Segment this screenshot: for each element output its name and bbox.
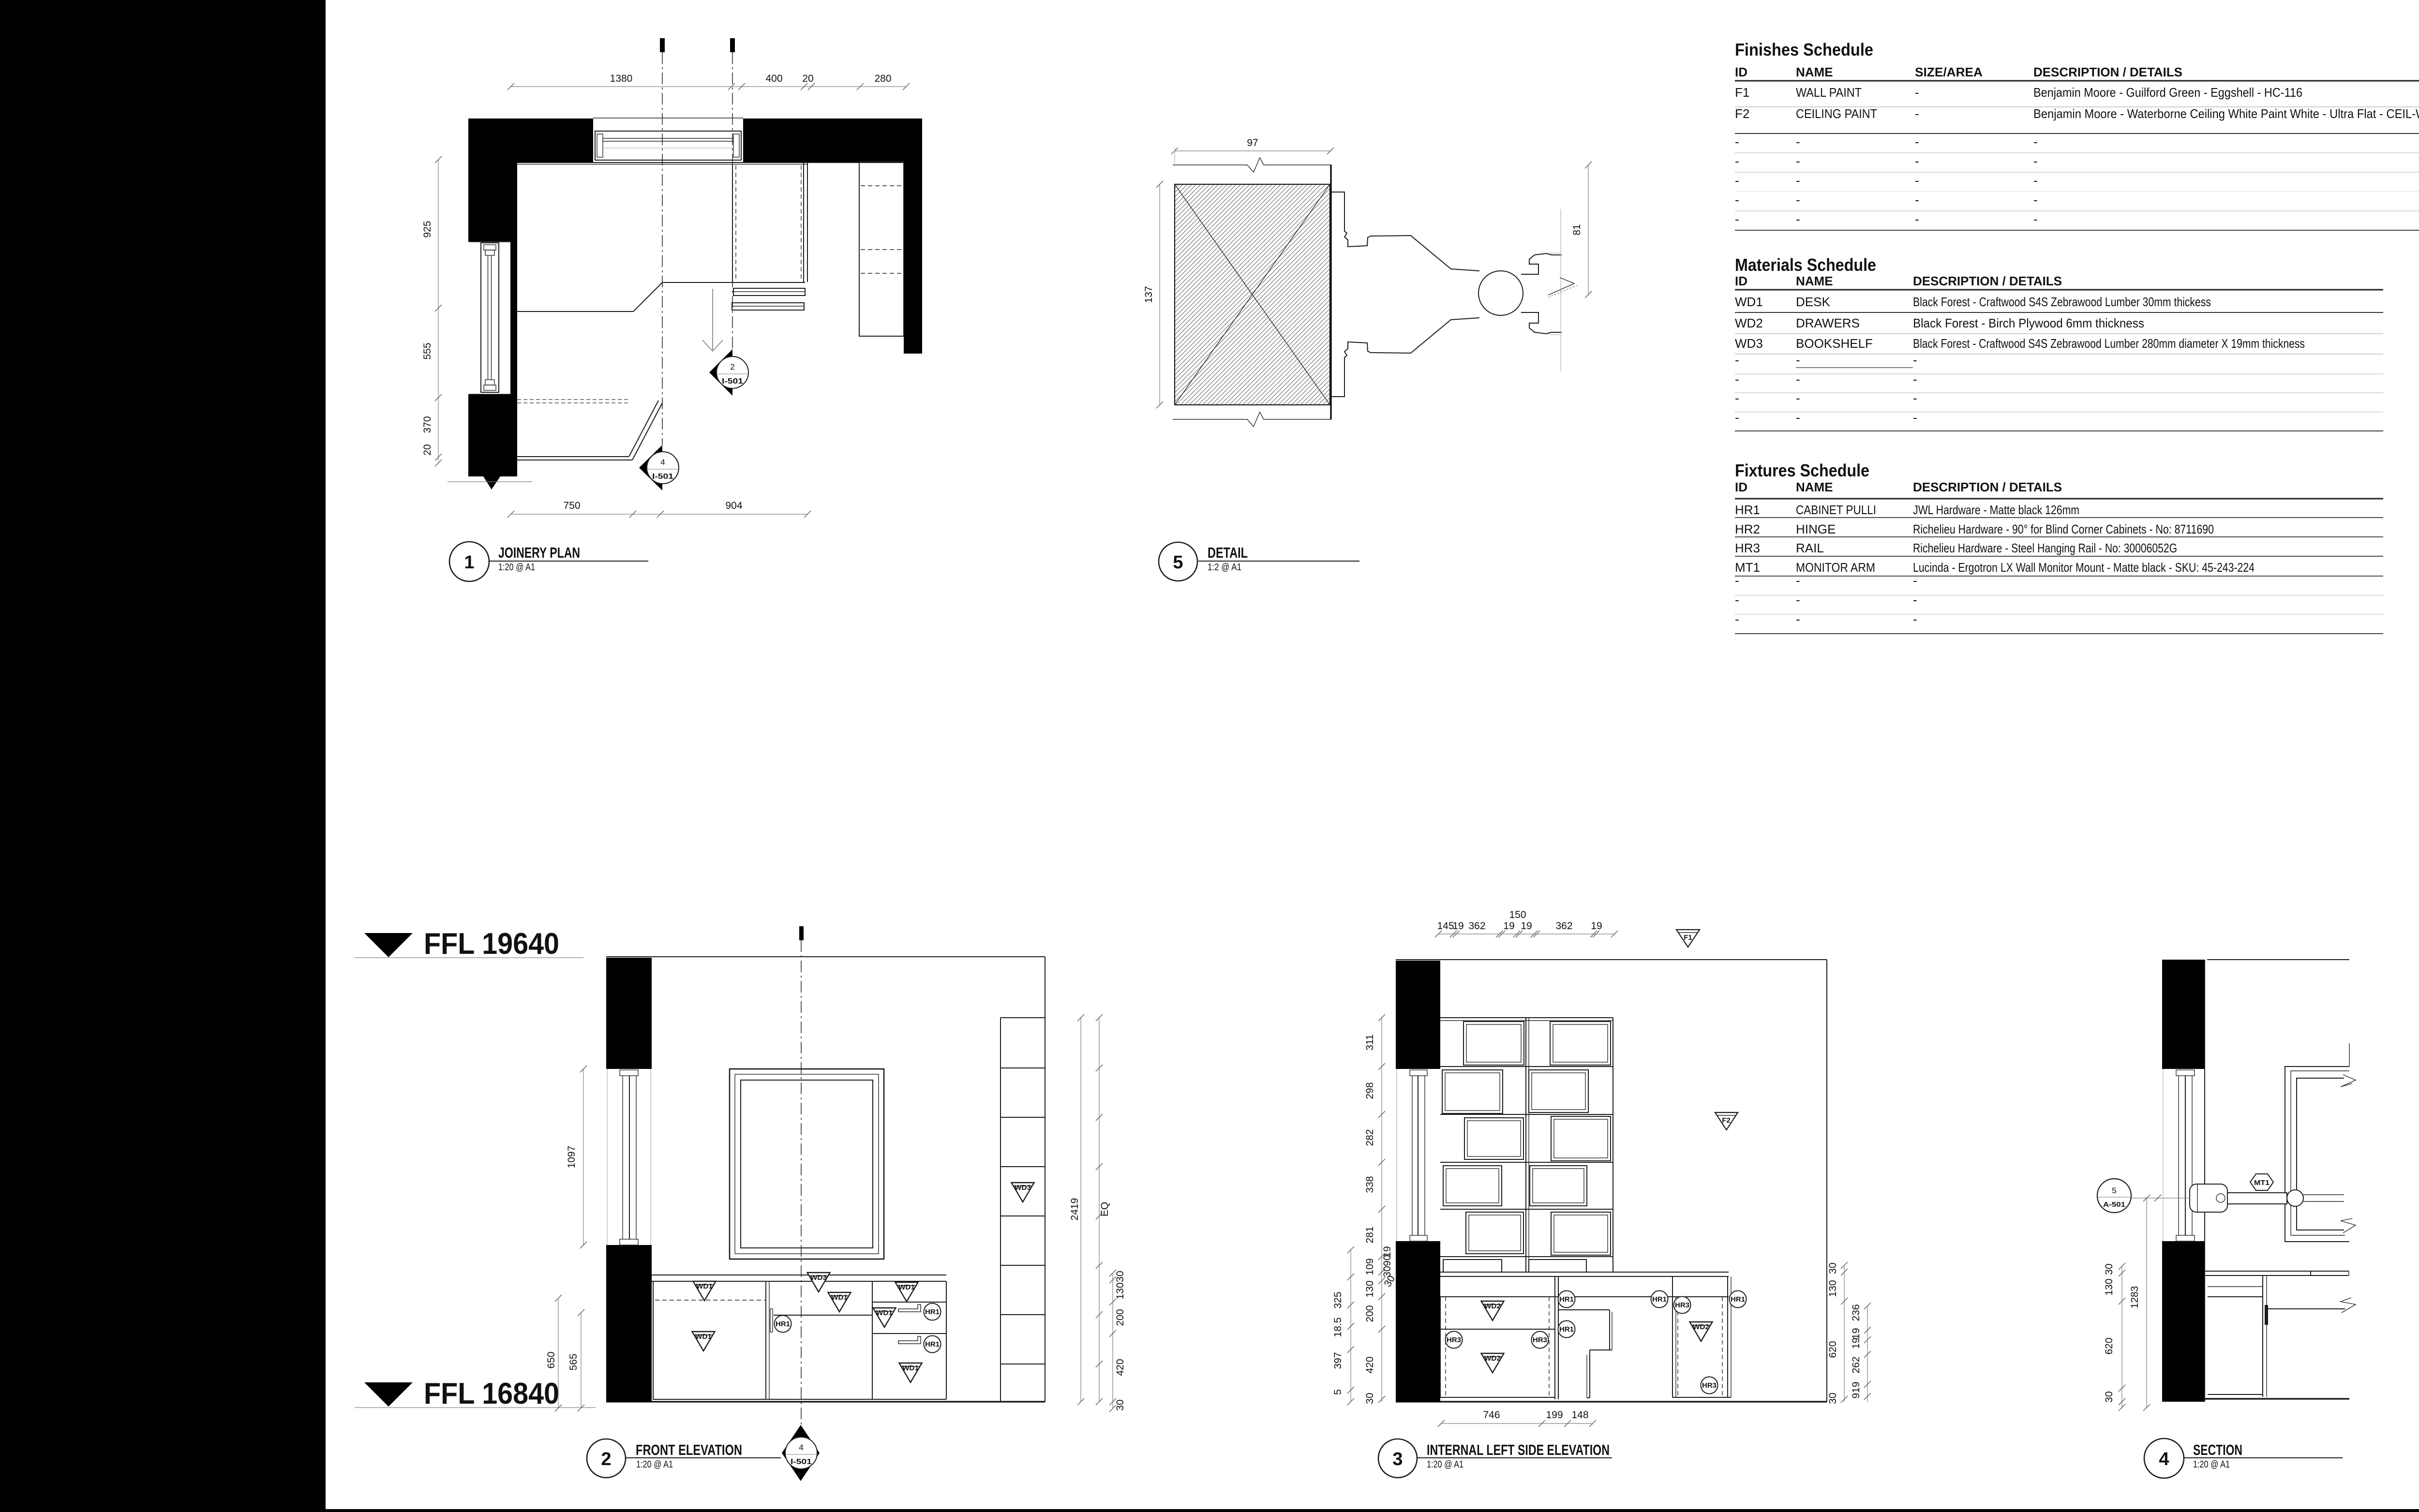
- svg-text:30: 30: [1115, 1271, 1126, 1282]
- svg-text:1097: 1097: [566, 1146, 577, 1169]
- svg-text:19: 19: [1591, 920, 1602, 932]
- svg-text:-: -: [2033, 154, 2038, 168]
- svg-text:WD2: WD2: [1484, 1302, 1501, 1310]
- svg-text:19: 19: [1521, 920, 1532, 932]
- svg-text:EQ: EQ: [1099, 1202, 1110, 1216]
- svg-text:-: -: [1735, 410, 1739, 425]
- svg-text:-: -: [1796, 593, 1800, 607]
- svg-text:MT1: MT1: [2254, 1179, 2270, 1187]
- svg-text:5: 5: [1332, 1389, 1344, 1395]
- svg-text:919: 919: [1851, 1381, 1862, 1398]
- svg-text:-: -: [1915, 212, 1919, 226]
- svg-text:3: 3: [1392, 1449, 1403, 1469]
- svg-text:HR3: HR3: [1447, 1336, 1461, 1344]
- svg-text:1: 1: [464, 552, 474, 573]
- svg-text:-: -: [1735, 154, 1739, 168]
- svg-text:DETAIL: DETAIL: [1208, 544, 1248, 561]
- svg-text:NAME: NAME: [1796, 480, 1833, 494]
- svg-text:-: -: [1735, 372, 1739, 386]
- svg-text:-: -: [2033, 193, 2038, 207]
- svg-text:30: 30: [1827, 1262, 1838, 1274]
- svg-text:-: -: [1915, 106, 1919, 121]
- svg-text:-: -: [1796, 212, 1800, 226]
- svg-text:ID: ID: [1735, 274, 1747, 288]
- svg-text:362: 362: [1468, 920, 1485, 932]
- svg-text:CABINET PULLI: CABINET PULLI: [1796, 503, 1876, 517]
- svg-text:Richelieu Hardware - Steel Han: Richelieu Hardware - Steel Hanging Rail …: [1913, 541, 2177, 555]
- svg-text:925: 925: [422, 221, 433, 237]
- svg-text:-: -: [1913, 573, 1917, 588]
- svg-text:-: -: [1735, 612, 1739, 626]
- svg-text:WD3: WD3: [1015, 1184, 1031, 1192]
- svg-text:281: 281: [1364, 1226, 1375, 1243]
- svg-text:130: 130: [2104, 1278, 2115, 1295]
- svg-text:WD1: WD1: [876, 1309, 893, 1317]
- svg-text:-: -: [1735, 573, 1739, 588]
- svg-text:19: 19: [1452, 920, 1463, 932]
- svg-text:HR1: HR1: [925, 1340, 940, 1349]
- svg-text:2: 2: [730, 362, 734, 371]
- svg-text:Finishes Schedule: Finishes Schedule: [1735, 40, 1873, 59]
- svg-text:Black Forest - Craftwood S4S Z: Black Forest - Craftwood S4S Zebrawood L…: [1913, 295, 2211, 309]
- svg-text:145: 145: [1437, 920, 1454, 932]
- svg-text:Materials Schedule: Materials Schedule: [1735, 255, 1876, 275]
- svg-text:130: 130: [1115, 1282, 1126, 1299]
- svg-text:SECTION: SECTION: [2193, 1441, 2242, 1458]
- svg-text:420: 420: [1364, 1356, 1375, 1373]
- svg-text:HR3: HR3: [1675, 1301, 1689, 1309]
- svg-text:NAME: NAME: [1796, 65, 1833, 79]
- svg-text:-: -: [1735, 353, 1739, 367]
- svg-text:30: 30: [2104, 1263, 2115, 1275]
- svg-text:-: -: [1796, 134, 1800, 149]
- svg-text:30: 30: [2104, 1391, 2115, 1402]
- svg-text:Richelieu Hardware - 90° for B: Richelieu Hardware - 90° for Blind Corne…: [1913, 522, 2214, 536]
- svg-text:WD1: WD1: [831, 1293, 848, 1302]
- svg-text:1:20 @ A1: 1:20 @ A1: [636, 1459, 673, 1470]
- svg-text:ID: ID: [1735, 65, 1747, 79]
- svg-text:HR2: HR2: [1735, 522, 1760, 536]
- svg-text:746: 746: [1483, 1409, 1500, 1421]
- svg-text:1380: 1380: [610, 73, 633, 84]
- svg-text:30: 30: [1364, 1393, 1375, 1404]
- svg-text:WD3: WD3: [1735, 336, 1763, 351]
- svg-text:200: 200: [1115, 1309, 1126, 1326]
- svg-text:FFL 19640: FFL 19640: [424, 927, 559, 961]
- svg-text:Benjamin Moore - Guilford Gree: Benjamin Moore - Guilford Green - Eggshe…: [2033, 85, 2302, 100]
- svg-text:Fixtures Schedule: Fixtures Schedule: [1735, 460, 1869, 480]
- svg-text:19: 19: [1851, 1337, 1862, 1349]
- svg-text:325: 325: [1332, 1291, 1344, 1308]
- svg-text:338: 338: [1364, 1176, 1375, 1193]
- svg-text:BOOKSHELF: BOOKSHELF: [1796, 336, 1873, 351]
- svg-text:-: -: [1915, 85, 1919, 100]
- svg-text:Black Forest - Craftwood S4S Z: Black Forest - Craftwood S4S Zebrawood L…: [1913, 336, 2305, 351]
- svg-text:HR1: HR1: [1731, 1295, 1745, 1304]
- svg-text:-: -: [1735, 193, 1739, 207]
- svg-text:109: 109: [1364, 1258, 1375, 1275]
- svg-text:4: 4: [799, 1443, 803, 1452]
- svg-text:565: 565: [568, 1353, 579, 1370]
- svg-text:WD3: WD3: [810, 1274, 827, 1282]
- svg-text:-: -: [1735, 212, 1739, 226]
- svg-text:WD1: WD1: [695, 1333, 712, 1341]
- svg-text:-: -: [1913, 391, 1917, 405]
- svg-text:5: 5: [1173, 552, 1183, 573]
- svg-text:1283: 1283: [2129, 1286, 2140, 1309]
- svg-text:-: -: [1796, 612, 1800, 626]
- svg-text:-: -: [2033, 212, 2038, 226]
- svg-text:WD1: WD1: [898, 1283, 915, 1291]
- svg-text:WD2: WD2: [1693, 1323, 1709, 1331]
- svg-text:NAME: NAME: [1796, 274, 1833, 288]
- svg-text:400: 400: [765, 73, 782, 84]
- svg-text:-: -: [1915, 173, 1919, 188]
- svg-text:WD1: WD1: [1735, 295, 1763, 309]
- svg-text:WD2: WD2: [1735, 316, 1763, 330]
- svg-text:HR1: HR1: [776, 1320, 790, 1328]
- svg-text:HR3: HR3: [1533, 1336, 1547, 1344]
- svg-text:1:20 @ A1: 1:20 @ A1: [498, 562, 535, 573]
- svg-text:-: -: [1796, 173, 1800, 188]
- svg-text:262: 262: [1851, 1356, 1862, 1373]
- svg-text:-: -: [1735, 391, 1739, 405]
- svg-text:750: 750: [563, 500, 580, 511]
- svg-text:-: -: [1913, 410, 1917, 425]
- svg-text:I-501: I-501: [652, 473, 673, 481]
- svg-text:1:20 @ A1: 1:20 @ A1: [1427, 1459, 1463, 1470]
- svg-text:370: 370: [422, 416, 433, 433]
- svg-text:20: 20: [422, 444, 433, 455]
- svg-text:WD2: WD2: [1484, 1354, 1501, 1363]
- svg-text:-: -: [1735, 173, 1739, 188]
- svg-text:RAIL: RAIL: [1796, 541, 1824, 555]
- svg-text:HR1: HR1: [925, 1308, 940, 1316]
- svg-text:HR1: HR1: [1735, 503, 1760, 517]
- svg-text:-: -: [2033, 173, 2038, 188]
- svg-text:90: 90: [1382, 1255, 1393, 1266]
- svg-text:30: 30: [1827, 1393, 1838, 1404]
- svg-text:DESK: DESK: [1796, 295, 1830, 309]
- svg-text:1:20 @ A1: 1:20 @ A1: [2193, 1459, 2230, 1470]
- svg-text:MT1: MT1: [1735, 560, 1760, 575]
- svg-text:199: 199: [1546, 1409, 1563, 1421]
- svg-text:2419: 2419: [1069, 1198, 1080, 1221]
- svg-text:130: 130: [1827, 1280, 1838, 1297]
- svg-text:-: -: [1915, 134, 1919, 149]
- svg-text:Benjamin Moore - Waterborne Ce: Benjamin Moore - Waterborne Ceiling Whit…: [2033, 106, 2419, 121]
- svg-text:362: 362: [1555, 920, 1572, 932]
- svg-text:904: 904: [725, 500, 742, 511]
- svg-text:SIZE/AREA: SIZE/AREA: [1915, 65, 1983, 79]
- svg-text:-: -: [2033, 134, 2038, 149]
- svg-text:WALL PAINT: WALL PAINT: [1796, 85, 1862, 100]
- svg-text:1:2 @ A1: 1:2 @ A1: [1208, 562, 1241, 573]
- svg-text:280: 280: [874, 73, 891, 84]
- svg-text:-: -: [1913, 372, 1917, 386]
- svg-text:A-501: A-501: [2103, 1201, 2125, 1209]
- svg-text:F1: F1: [1735, 85, 1749, 100]
- svg-text:WD1: WD1: [902, 1364, 919, 1372]
- svg-text:DESCRIPTION / DETAILS: DESCRIPTION / DETAILS: [1913, 274, 2062, 288]
- svg-text:DESCRIPTION / DETAILS: DESCRIPTION / DETAILS: [1913, 480, 2062, 494]
- svg-text:FFL 16840: FFL 16840: [424, 1377, 559, 1410]
- svg-text:-: -: [1735, 134, 1739, 149]
- svg-text:HR3: HR3: [1702, 1381, 1717, 1390]
- svg-text:420: 420: [1115, 1359, 1126, 1376]
- svg-text:WD1: WD1: [696, 1282, 713, 1290]
- svg-text:19: 19: [1851, 1328, 1862, 1339]
- svg-text:236: 236: [1851, 1304, 1862, 1321]
- svg-text:18.5: 18.5: [1332, 1318, 1344, 1337]
- svg-text:F2: F2: [1722, 1116, 1731, 1125]
- svg-text:CEILING PAINT: CEILING PAINT: [1796, 106, 1877, 121]
- svg-text:4: 4: [2159, 1449, 2169, 1469]
- svg-text:150: 150: [1509, 909, 1526, 920]
- svg-text:-: -: [1796, 410, 1800, 425]
- svg-text:F2: F2: [1735, 106, 1749, 121]
- svg-text:Lucinda - Ergotron LX Wall Mon: Lucinda - Ergotron LX Wall Monitor Mount…: [1913, 560, 2255, 575]
- svg-text:650: 650: [546, 1351, 557, 1368]
- svg-text:-: -: [1913, 593, 1917, 607]
- svg-text:20: 20: [802, 73, 813, 84]
- svg-text:FRONT ELEVATION: FRONT ELEVATION: [636, 1441, 742, 1458]
- svg-text:298: 298: [1364, 1082, 1375, 1099]
- svg-text:19: 19: [1503, 920, 1514, 932]
- svg-text:JWL Hardware - Matte black 126: JWL Hardware - Matte black 126mm: [1913, 503, 2079, 517]
- svg-text:INTERNAL LEFT SIDE ELEVATION: INTERNAL LEFT SIDE ELEVATION: [1427, 1441, 1610, 1458]
- svg-text:-: -: [1915, 154, 1919, 168]
- svg-text:-: -: [1913, 353, 1917, 367]
- svg-text:DRAWERS: DRAWERS: [1796, 316, 1860, 330]
- svg-text:-: -: [1796, 353, 1800, 367]
- svg-text:-: -: [1796, 573, 1800, 588]
- svg-text:JOINERY PLAN: JOINERY PLAN: [498, 544, 580, 561]
- svg-text:-: -: [1735, 593, 1739, 607]
- svg-text:DESCRIPTION / DETAILS: DESCRIPTION / DETAILS: [2033, 65, 2182, 79]
- svg-text:HR1: HR1: [1559, 1325, 1574, 1334]
- svg-text:4: 4: [660, 458, 665, 467]
- svg-text:555: 555: [422, 342, 433, 359]
- svg-text:HINGE: HINGE: [1796, 522, 1836, 536]
- svg-text:HR1: HR1: [1652, 1295, 1667, 1304]
- svg-text:2: 2: [601, 1449, 611, 1469]
- svg-text:148: 148: [1571, 1409, 1588, 1421]
- svg-text:97: 97: [1247, 137, 1258, 148]
- svg-text:I-501: I-501: [722, 377, 743, 385]
- svg-text:I-501: I-501: [791, 1458, 812, 1466]
- svg-text:F1: F1: [1684, 934, 1692, 942]
- svg-text:311: 311: [1364, 1034, 1375, 1050]
- svg-text:-: -: [1913, 612, 1917, 626]
- svg-text:-: -: [1796, 193, 1800, 207]
- svg-text:-: -: [1915, 193, 1919, 207]
- svg-text:ID: ID: [1735, 480, 1747, 494]
- svg-text:620: 620: [1827, 1341, 1838, 1358]
- svg-text:137: 137: [1143, 286, 1154, 303]
- svg-text:HR3: HR3: [1735, 541, 1760, 555]
- svg-text:5: 5: [2112, 1186, 2116, 1195]
- svg-text:397: 397: [1332, 1352, 1344, 1369]
- svg-text:-: -: [1796, 391, 1800, 405]
- svg-text:MONITOR ARM: MONITOR ARM: [1796, 560, 1875, 575]
- svg-text:620: 620: [2104, 1337, 2115, 1354]
- svg-text:130: 130: [1364, 1280, 1375, 1297]
- svg-text:-: -: [1796, 372, 1800, 386]
- svg-text:Black Forest - Birch Plywood 6: Black Forest - Birch Plywood 6mm thickne…: [1913, 316, 2144, 330]
- svg-text:81: 81: [1571, 224, 1583, 235]
- svg-text:30: 30: [1115, 1399, 1126, 1410]
- svg-text:200: 200: [1364, 1305, 1375, 1322]
- svg-text:282: 282: [1364, 1129, 1375, 1146]
- svg-text:HR1: HR1: [1559, 1295, 1574, 1304]
- svg-text:-: -: [1796, 154, 1800, 168]
